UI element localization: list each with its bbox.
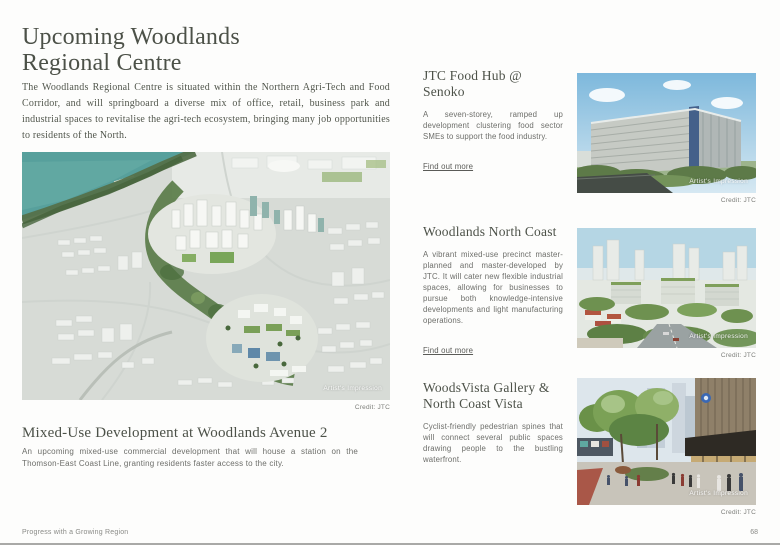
section-description: A vibrant mixed-use precinct master-plan…: [423, 249, 563, 326]
food-hub-illustration: [577, 73, 756, 193]
credit-caption: Credit: JTC: [577, 352, 756, 359]
section-woodsvista-gallery: WoodsVista Gallery & North Coast Vista C…: [423, 380, 563, 479]
credit-caption: Credit: JTC: [577, 509, 756, 516]
right-building: [695, 378, 756, 440]
page-title: Upcoming Woodlands Regional Centre: [22, 24, 272, 76]
woodsvista-illustration: [577, 378, 756, 505]
find-out-more-link[interactable]: Find out more: [423, 162, 473, 171]
food-hub-image: Artist's Impression: [577, 73, 756, 193]
section-jtc-food-hub: JTC Food Hub @ Senoko A seven-storey, ra…: [423, 68, 563, 174]
feature-heading: Mixed-Use Development at Woodlands Avenu…: [22, 425, 390, 442]
north-coast-illustration: [577, 228, 756, 348]
artists-impression-watermark: Artist's Impression: [689, 178, 748, 185]
credit-caption: Credit: JTC: [22, 404, 390, 411]
section-heading: WoodsVista Gallery & North Coast Vista: [423, 380, 563, 412]
woodsvista-figure: Artist's Impression Credit: JTC: [577, 378, 756, 516]
north-coast-figure: Artist's Impression Credit: JTC: [577, 228, 756, 359]
section-heading: JTC Food Hub @ Senoko: [423, 68, 563, 100]
section-description: Cyclist-friendly pedestrian spines that …: [423, 421, 563, 465]
north-coast-image: Artist's Impression: [577, 228, 756, 348]
brochure-page: Upcoming Woodlands Regional Centre The W…: [0, 0, 780, 545]
credit-caption: Credit: JTC: [577, 197, 756, 204]
artists-impression-watermark: Artist's Impression: [323, 385, 382, 392]
main-aerial-figure: Artist's Impression Credit: JTC: [22, 152, 390, 411]
page-number: 68: [750, 529, 758, 536]
intro-paragraph: The Woodlands Regional Centre is situate…: [22, 80, 390, 144]
feature-description: An upcoming mixed-use commercial develop…: [22, 446, 358, 469]
section-description: A seven-storey, ramped up development cl…: [423, 109, 563, 142]
artists-impression-watermark: Artist's Impression: [689, 333, 748, 340]
section-woodlands-north-coast: Woodlands North Coast A vibrant mixed-us…: [423, 224, 563, 358]
aerial-rendering-image: Artist's Impression: [22, 152, 390, 400]
woodsvista-image: Artist's Impression: [577, 378, 756, 505]
footer-section-title: Progress with a Growing Region: [22, 529, 128, 536]
aerial-rendering-illustration: [22, 152, 390, 400]
artists-impression-watermark: Artist's Impression: [689, 490, 748, 497]
food-hub-figure: Artist's Impression Credit: JTC: [577, 73, 756, 204]
find-out-more-link[interactable]: Find out more: [423, 346, 473, 355]
section-heading: Woodlands North Coast: [423, 224, 563, 240]
